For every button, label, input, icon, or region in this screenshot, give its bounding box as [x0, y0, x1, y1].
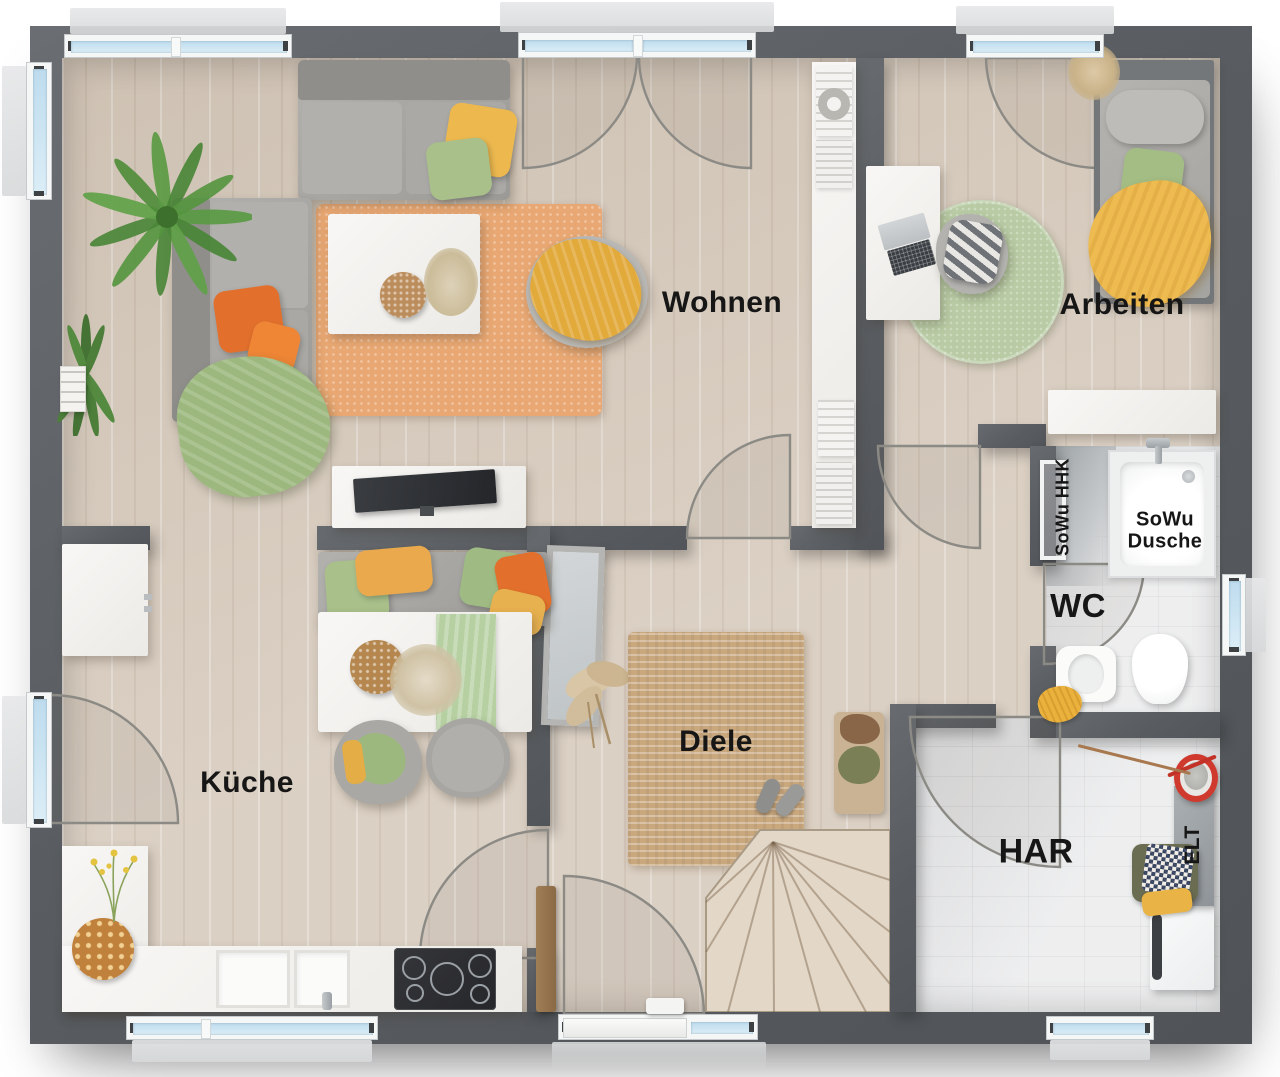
fridge: [62, 544, 148, 656]
staircase: [704, 826, 890, 1012]
sofa-top-cushion: [302, 102, 402, 194]
window-sill: [1244, 578, 1266, 652]
window-sill: [132, 1040, 372, 1062]
burner: [470, 984, 490, 1004]
desk-chair-blanket: [941, 218, 1005, 286]
burner: [468, 954, 492, 978]
burner: [406, 984, 424, 1002]
door-arc-terrace-left: [523, 56, 637, 168]
window-wc-right: [1222, 574, 1246, 656]
daybed-bolster: [1106, 90, 1204, 144]
room-label-wc: WC: [1050, 587, 1106, 625]
decor-grass: [424, 248, 478, 316]
window-har-bottom: [1046, 1016, 1154, 1040]
window-glass: [33, 69, 47, 195]
front-door-sidelight: [691, 1022, 753, 1034]
front-door: [558, 1014, 758, 1040]
terrace-door-office: [966, 34, 1104, 58]
window-sill: [2, 696, 26, 824]
plant-sign: [60, 366, 86, 412]
burner: [430, 962, 464, 996]
office-dresser: [1048, 390, 1216, 434]
room-label-kueche: Küche: [200, 766, 294, 800]
front-door-leaf: [563, 1018, 687, 1038]
window-sill: [956, 6, 1114, 34]
floor-plan-canvas: Wohnen Arbeiten Küche Diele WC HAR SoWu …: [0, 0, 1280, 1077]
toilet: [1132, 634, 1188, 704]
washing-machine-door: [1152, 914, 1162, 980]
cooktop: [394, 948, 496, 1010]
window-sill: [70, 8, 286, 34]
terrace-step: [500, 2, 774, 32]
shower-drain: [1182, 470, 1195, 483]
window-sill: [2, 66, 26, 196]
pillow-green: [425, 136, 494, 201]
window-living-top: [64, 34, 292, 58]
side-door-kitchen: [26, 692, 52, 828]
bench-pillow-yellow: [354, 545, 434, 597]
flower-sprigs: [84, 846, 144, 924]
window-mullion: [201, 1019, 211, 1039]
window-glass: [133, 1023, 373, 1035]
window-kitchen-bottom: [126, 1016, 378, 1040]
window-glass: [1229, 581, 1241, 651]
window-sill: [1050, 1040, 1150, 1060]
tv-stand: [420, 506, 434, 516]
room-label-wohnen: Wohnen: [662, 286, 782, 320]
window-living-left: [26, 62, 52, 200]
door-arc-office: [878, 446, 980, 548]
books: [816, 462, 852, 524]
fruit-bowl: [72, 918, 134, 980]
window-glass: [1053, 1023, 1149, 1035]
decor-bowl: [380, 272, 426, 318]
dining-chair: [426, 718, 510, 798]
room-label-arbeiten: Arbeiten: [1060, 288, 1185, 322]
door-glass: [973, 41, 1099, 53]
door-glass: [33, 699, 47, 823]
room-label-har: HAR: [999, 833, 1074, 872]
door-arc-terrace-right: [639, 56, 751, 168]
kitchen-door-leaf: [536, 886, 556, 1012]
label-elt: ELT: [1181, 825, 1205, 864]
books: [818, 400, 854, 456]
door-glass: [525, 40, 633, 52]
fridge-handle: [144, 606, 152, 612]
shower-faucet-pipe: [1155, 446, 1162, 464]
terrace-door-living: [518, 32, 756, 58]
sofa-top-back: [298, 60, 510, 100]
door-mullion: [633, 35, 643, 57]
label-sowu-dusche-line2: Dusche: [1128, 531, 1203, 553]
wreath-decor: [818, 88, 850, 120]
fridge-handle: [144, 594, 152, 600]
coat-item-green: [838, 746, 880, 784]
door-arc-kitchen-hall: [420, 830, 548, 958]
label-sowu-dusche: SoWu Dusche: [1128, 509, 1203, 552]
door-arc-front: [564, 876, 704, 1014]
door-arc-living-hall: [687, 435, 790, 538]
front-door-handle: [646, 998, 684, 1014]
entry-step: [552, 1042, 766, 1072]
label-sowu-dusche-line1: SoWu: [1128, 509, 1203, 531]
books: [816, 140, 852, 188]
window-mullion: [171, 37, 181, 57]
table-dried-flowers: [390, 644, 462, 716]
coat-item-brown: [840, 714, 880, 744]
door-glass: [643, 40, 751, 52]
sink-faucet: [322, 992, 332, 1010]
burner: [402, 956, 426, 980]
door-arc-kitchen-side: [50, 695, 178, 823]
sink-basin: [216, 950, 290, 1008]
room-label-diele: Diele: [679, 725, 753, 759]
palm-plant: [82, 132, 252, 302]
label-sowu-hhk: SoWu HHK: [1053, 458, 1074, 556]
